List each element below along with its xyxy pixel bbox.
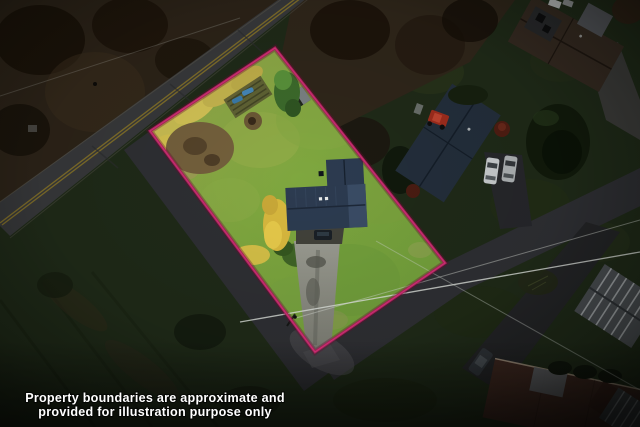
aerial-photo: Property boundaries are approximate and … xyxy=(0,0,640,427)
disclaimer-line1: Property boundaries are approximate and xyxy=(25,391,285,405)
disclaimer-line2: provided for illustration purpose only xyxy=(38,405,271,419)
